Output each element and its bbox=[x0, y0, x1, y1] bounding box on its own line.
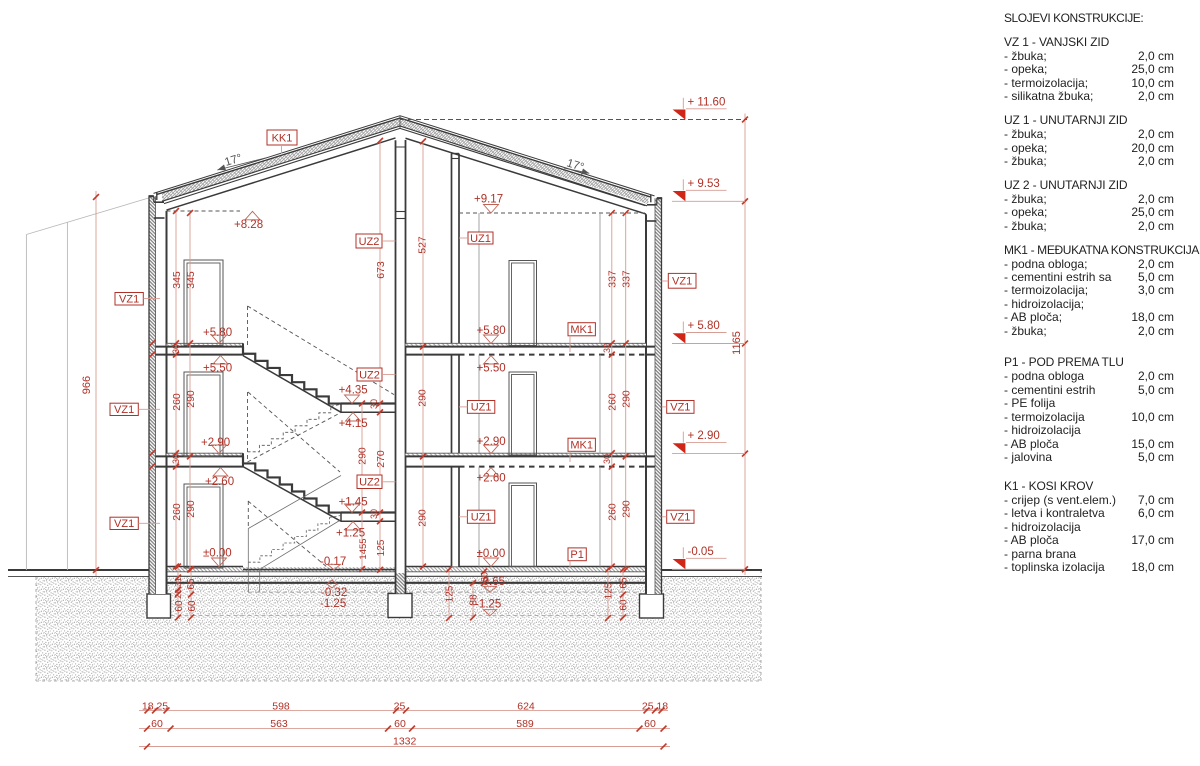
svg-text:VZ1: VZ1 bbox=[670, 512, 690, 524]
svg-text:60: 60 bbox=[394, 718, 406, 730]
svg-text:-1.25: -1.25 bbox=[320, 598, 346, 610]
svg-text:65: 65 bbox=[619, 577, 630, 589]
svg-text:290: 290 bbox=[357, 447, 369, 465]
svg-text:+2.90: +2.90 bbox=[201, 437, 230, 449]
svg-text:589: 589 bbox=[516, 718, 534, 730]
svg-text:+8.28: +8.28 bbox=[234, 219, 263, 231]
svg-text:UZ2: UZ2 bbox=[359, 369, 380, 381]
svg-text:+1.25: +1.25 bbox=[336, 528, 365, 540]
svg-text:125: 125 bbox=[445, 585, 456, 602]
svg-text:125: 125 bbox=[604, 582, 615, 599]
svg-text:1165: 1165 bbox=[731, 331, 743, 355]
svg-text:290: 290 bbox=[621, 390, 633, 408]
svg-text:+4.15: +4.15 bbox=[339, 418, 368, 430]
svg-text:VZ1: VZ1 bbox=[670, 402, 690, 414]
svg-text:-1.25: -1.25 bbox=[475, 599, 501, 611]
svg-text:966: 966 bbox=[81, 376, 93, 394]
svg-text:290: 290 bbox=[185, 500, 197, 518]
svg-text:+9.17: +9.17 bbox=[474, 194, 503, 206]
svg-text:345: 345 bbox=[171, 271, 183, 289]
svg-text:+2.60: +2.60 bbox=[477, 472, 506, 484]
svg-text:-0.17: -0.17 bbox=[320, 556, 346, 568]
svg-text:60: 60 bbox=[187, 600, 198, 612]
svg-text:+2.90: +2.90 bbox=[477, 436, 506, 448]
svg-text:65: 65 bbox=[186, 578, 197, 590]
svg-text:UZ2: UZ2 bbox=[359, 236, 380, 248]
svg-text:563: 563 bbox=[270, 718, 288, 730]
svg-text:30: 30 bbox=[602, 454, 612, 464]
svg-text:337: 337 bbox=[607, 270, 619, 288]
svg-text:673: 673 bbox=[375, 261, 387, 279]
svg-text:598: 598 bbox=[272, 701, 290, 713]
svg-text:+ 5.80: + 5.80 bbox=[688, 320, 720, 332]
svg-text:125: 125 bbox=[376, 539, 387, 556]
svg-text:1455: 1455 bbox=[358, 538, 369, 559]
svg-text:UZ1: UZ1 bbox=[471, 402, 492, 414]
svg-text:290: 290 bbox=[621, 500, 633, 518]
svg-text:624: 624 bbox=[517, 701, 535, 713]
svg-text:+2.60: +2.60 bbox=[205, 476, 234, 488]
svg-text:60: 60 bbox=[644, 718, 656, 730]
svg-text:1332: 1332 bbox=[393, 736, 417, 748]
svg-text:VZ1: VZ1 bbox=[114, 518, 134, 530]
svg-text:260: 260 bbox=[607, 503, 619, 521]
svg-text:260: 260 bbox=[171, 393, 183, 411]
svg-text:P1: P1 bbox=[570, 549, 583, 561]
svg-text:UZ2: UZ2 bbox=[359, 477, 380, 489]
svg-text:UZ1: UZ1 bbox=[471, 512, 492, 524]
svg-text:+ 9.53: + 9.53 bbox=[688, 178, 720, 190]
svg-text:30: 30 bbox=[602, 343, 612, 353]
svg-text:30: 30 bbox=[171, 454, 181, 464]
svg-text:290: 290 bbox=[185, 390, 197, 408]
svg-text:30: 30 bbox=[171, 344, 181, 354]
svg-text:290: 290 bbox=[417, 389, 429, 407]
svg-text:60: 60 bbox=[151, 718, 163, 730]
svg-text:MK1: MK1 bbox=[570, 440, 593, 452]
svg-text:290: 290 bbox=[417, 509, 429, 527]
svg-text:527: 527 bbox=[417, 236, 429, 254]
svg-text:+ 11.60: + 11.60 bbox=[688, 96, 726, 108]
svg-text:28,31: 28,31 bbox=[173, 577, 183, 599]
svg-text:260: 260 bbox=[171, 503, 183, 521]
svg-text:30: 30 bbox=[369, 399, 379, 409]
svg-text:MK1: MK1 bbox=[570, 324, 593, 336]
svg-text:VZ1: VZ1 bbox=[119, 294, 139, 306]
svg-text:18,25: 18,25 bbox=[142, 701, 168, 713]
svg-text:270: 270 bbox=[375, 450, 387, 468]
svg-text:25,18: 25,18 bbox=[642, 701, 668, 713]
svg-text:UZ1: UZ1 bbox=[470, 233, 491, 245]
svg-text:+5.80: +5.80 bbox=[203, 327, 232, 339]
svg-text:260: 260 bbox=[607, 393, 619, 411]
svg-text:VZ1: VZ1 bbox=[114, 404, 134, 416]
svg-text:+ 2.90: + 2.90 bbox=[688, 430, 720, 442]
svg-text:60: 60 bbox=[174, 600, 185, 612]
svg-text:345: 345 bbox=[185, 271, 197, 289]
svg-text:+1.45: +1.45 bbox=[339, 497, 368, 509]
svg-text:60: 60 bbox=[619, 599, 630, 611]
svg-text:337: 337 bbox=[621, 270, 633, 288]
svg-text:VZ1: VZ1 bbox=[672, 276, 692, 288]
svg-text:-0.05: -0.05 bbox=[688, 546, 714, 558]
svg-text:25: 25 bbox=[394, 701, 406, 713]
svg-text:30: 30 bbox=[369, 509, 379, 519]
svg-text:KK1: KK1 bbox=[272, 132, 293, 144]
